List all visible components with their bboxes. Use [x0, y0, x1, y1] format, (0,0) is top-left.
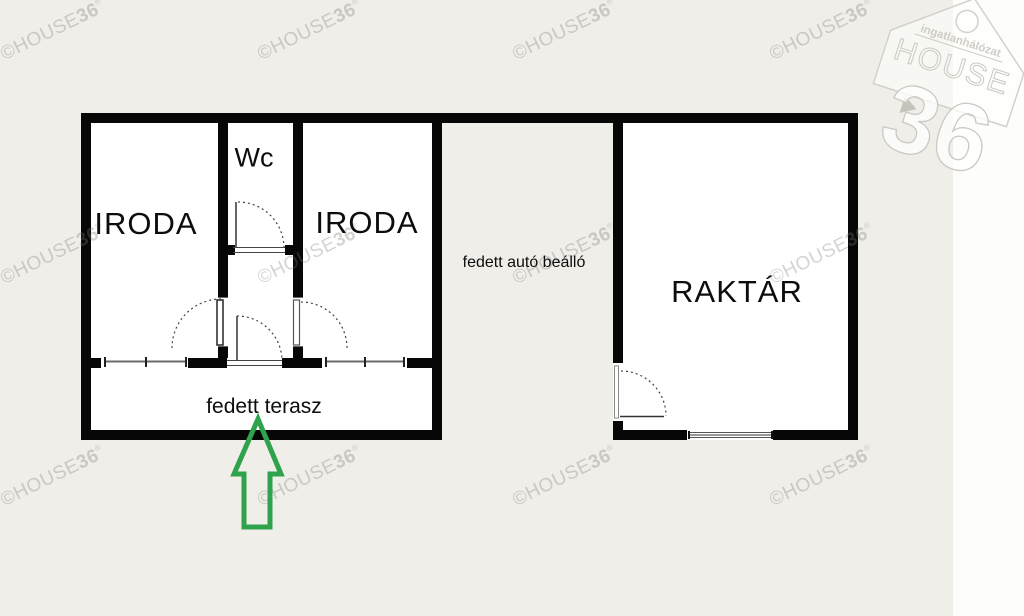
- entrance-arrow-icon: [234, 419, 281, 527]
- entrance-arrow-layer: [0, 0, 1024, 616]
- floorplan-page: ©HOUSE36®©HOUSE36®©HOUSE36®©HOUSE36®©HOU…: [0, 0, 1024, 616]
